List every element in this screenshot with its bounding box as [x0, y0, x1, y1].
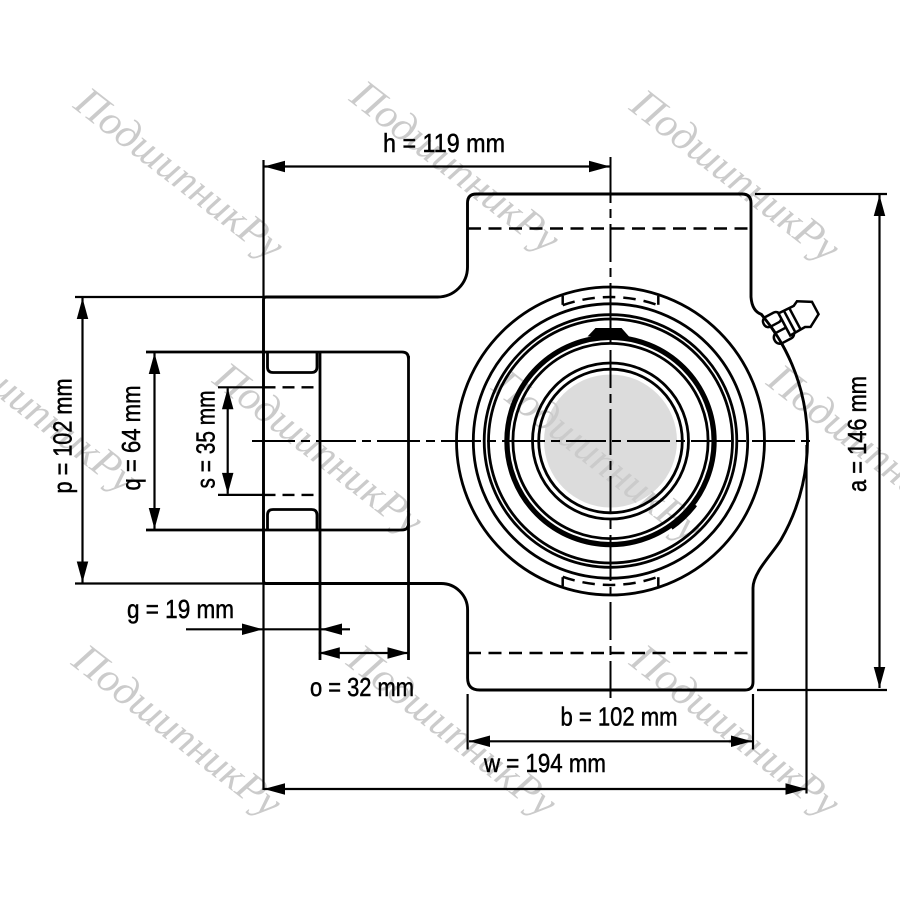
svg-text:w = 194 mm: w = 194 mm [483, 748, 606, 778]
svg-text:p = 102 mm: p = 102 mm [48, 379, 78, 494]
svg-text:h = 119 mm: h = 119 mm [383, 128, 505, 158]
svg-text:o = 32 mm: o = 32 mm [310, 672, 414, 702]
svg-text:b = 102 mm: b = 102 mm [561, 702, 678, 732]
svg-text:q = 64 mm: q = 64 mm [116, 386, 146, 491]
svg-text:g = 19 mm: g = 19 mm [127, 594, 234, 624]
svg-text:s = 35 mm: s = 35 mm [191, 391, 221, 489]
svg-text:a = 146 mm: a = 146 mm [842, 376, 872, 492]
